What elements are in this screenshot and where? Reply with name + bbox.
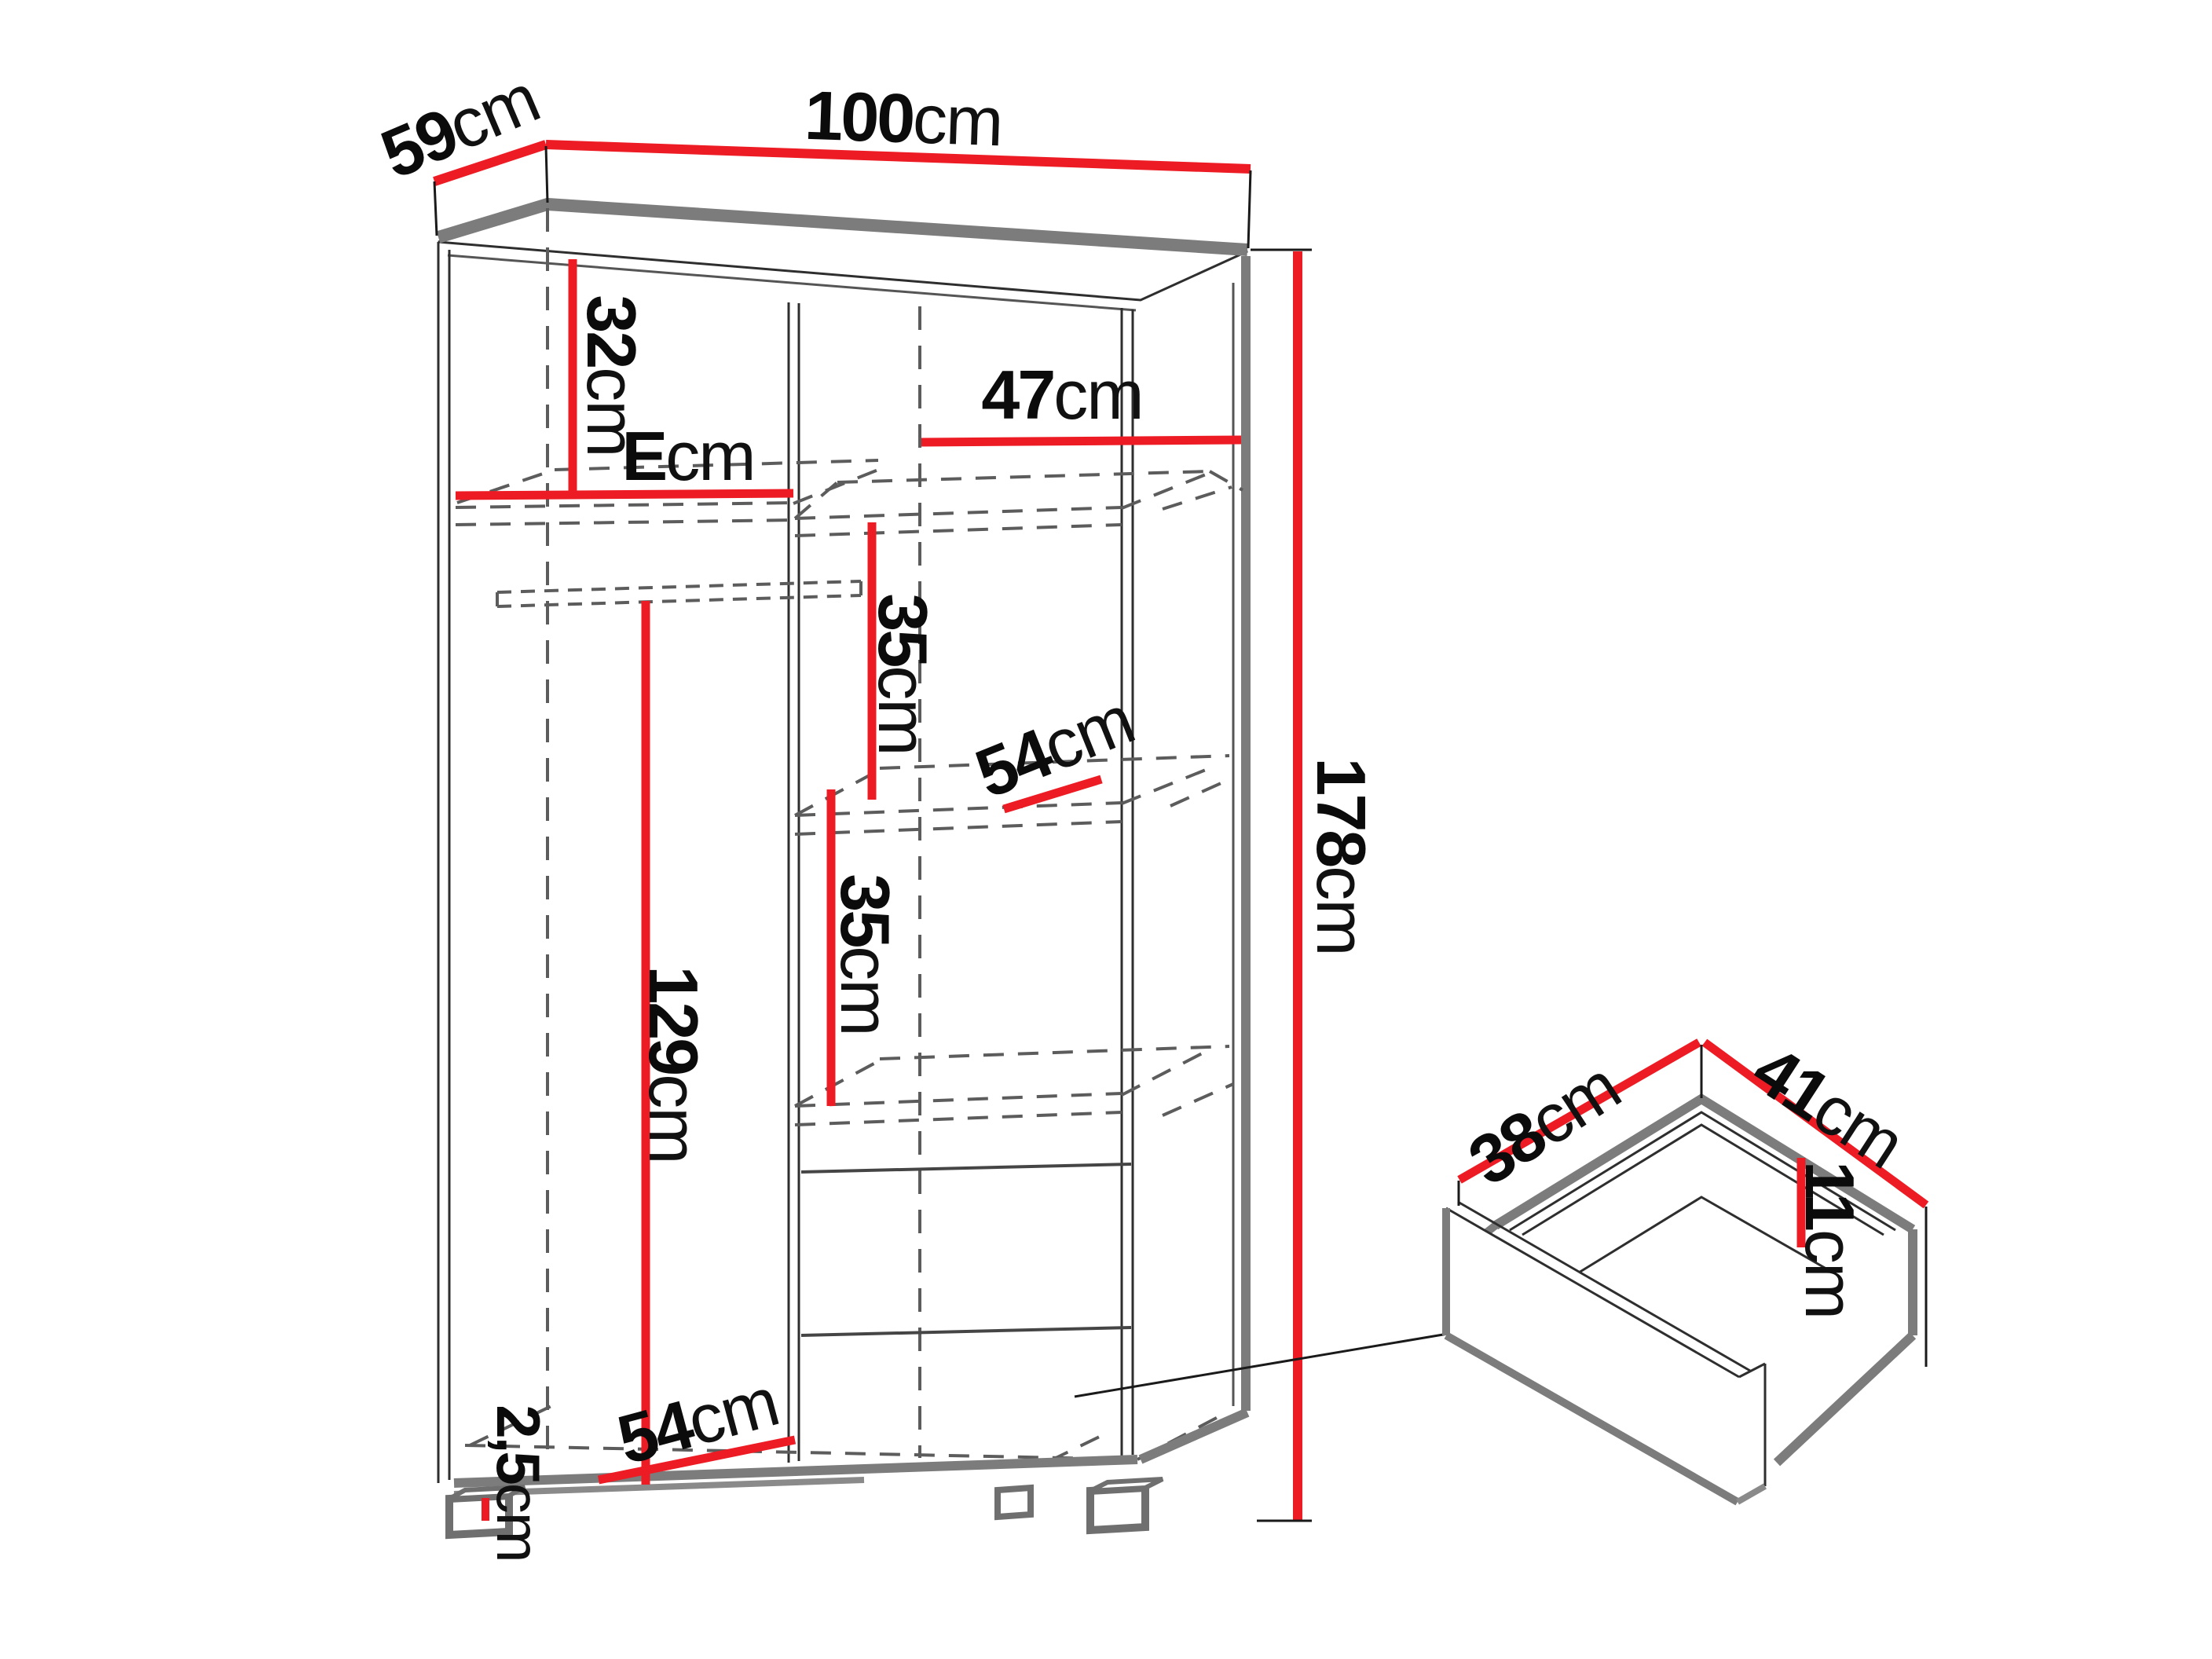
label-gap-35-lower: 35cm [827, 873, 905, 1035]
right-top-shelf-hidden-lines [795, 471, 1243, 536]
label-plinth-25: 2,5cm [484, 1404, 553, 1561]
label-height-178: 178cm [1303, 757, 1381, 954]
drawer-leader-line [1075, 1334, 1448, 1397]
label-drawer-41: 41cm [1740, 1030, 1917, 1183]
drawer-front-panel [1446, 1208, 1739, 1502]
label-hang-129: 129cm [635, 965, 713, 1163]
label-drawer-11: 11cm [1792, 1161, 1870, 1318]
right-bottom-shelf-hidden-lines [795, 1046, 1233, 1125]
label-width-100: 100cm [804, 75, 1003, 160]
wardrobe-dimension-diagram: 59cm 100cm 178cm 32cm Ecm 47cm 35cm 54cm… [0, 0, 2212, 1659]
floor-hidden-lines [465, 1404, 1227, 1461]
label-drawer-38: 38cm [1455, 1047, 1632, 1200]
hanging-rod-hidden-lines [497, 581, 861, 606]
label-shelf-47: 47cm [981, 356, 1142, 434]
label-shelf-E: Ecm [621, 417, 754, 495]
drawer-front-divider-1 [801, 1164, 1131, 1172]
label-gap-35-upper: 35cm [865, 593, 943, 754]
drawer-front-divider-2 [801, 1328, 1131, 1335]
diagram-page: 59cm 100cm 178cm 32cm Ecm 47cm 35cm 54cm… [0, 0, 2212, 1659]
dim-line-shelf-47 [921, 440, 1241, 442]
wardrobe-foot-right [998, 1479, 1163, 1530]
wardrobe-bottom-side-edge [1141, 1412, 1247, 1459]
